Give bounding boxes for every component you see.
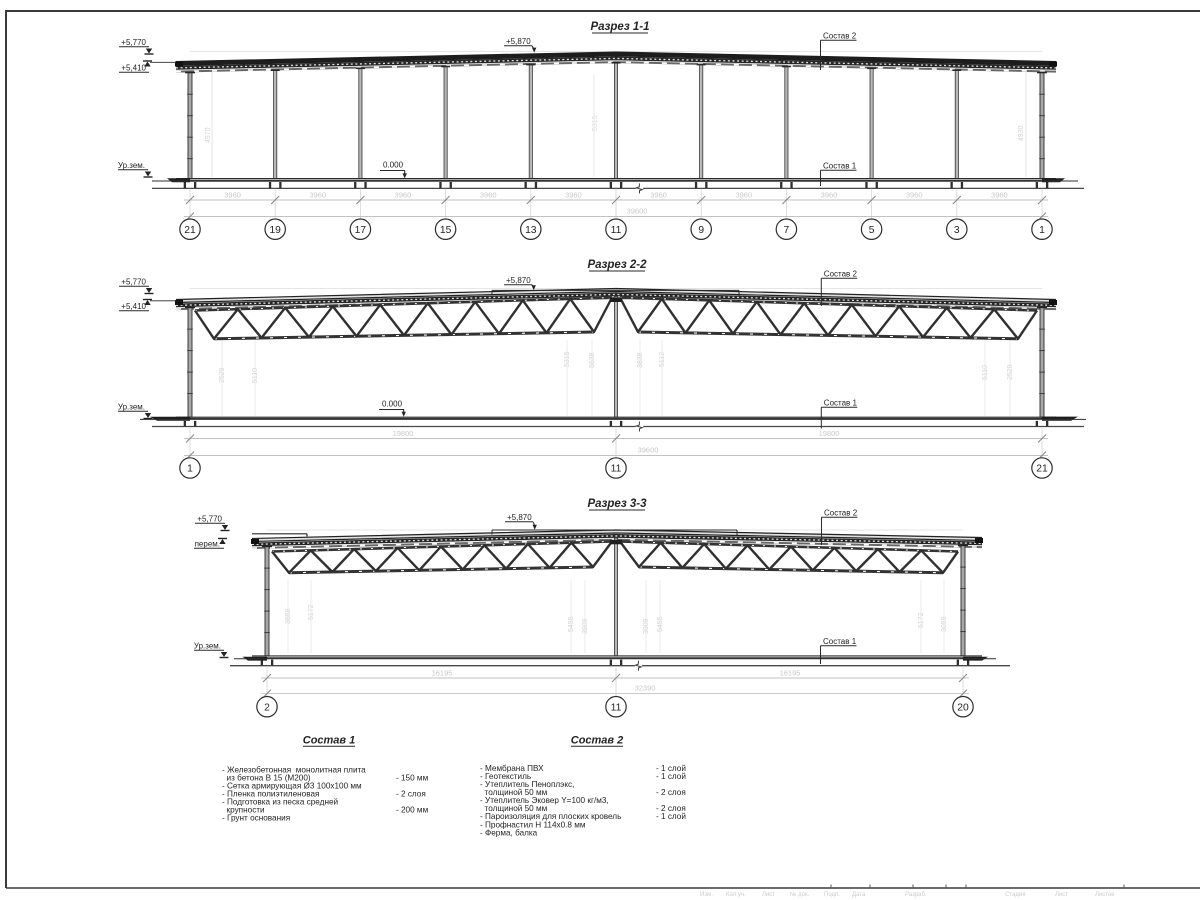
svg-text:Изм.: Изм. [700, 892, 713, 898]
svg-text:Разрез 1-1: Разрез 1-1 [590, 21, 649, 33]
svg-text:Стадия: Стадия [1005, 892, 1025, 898]
svg-text:Подп.: Подп. [824, 892, 840, 898]
svg-text:21: 21 [1036, 464, 1048, 475]
svg-text:- 2 слоя: - 2 слоя [396, 790, 426, 799]
svg-text:13: 13 [525, 225, 537, 236]
svg-text:2529: 2529 [219, 367, 226, 383]
svg-text:- Грунт основания: - Грунт основания [222, 814, 290, 823]
svg-text:5315: 5315 [592, 115, 599, 131]
svg-text:17: 17 [355, 225, 367, 236]
svg-text:Состав 1: Состав 1 [303, 735, 356, 747]
svg-text:11: 11 [611, 464, 622, 475]
svg-text:3960: 3960 [650, 190, 667, 199]
svg-text:+5,770: +5,770 [121, 278, 146, 287]
svg-text:Состав 1: Состав 1 [823, 162, 857, 171]
svg-text:Разраб.: Разраб. [905, 892, 927, 898]
svg-text:3: 3 [954, 225, 960, 236]
svg-text:3960: 3960 [224, 190, 241, 199]
svg-text:- 200 мм: - 200 мм [396, 806, 429, 815]
svg-text:5172: 5172 [308, 604, 315, 620]
svg-text:Ур.зем.: Ур.зем. [194, 642, 221, 651]
svg-text:39600: 39600 [638, 446, 659, 455]
svg-text:+5,870: +5,870 [507, 513, 532, 522]
svg-text:- Ферма, балка: - Ферма, балка [480, 828, 538, 837]
svg-text:9: 9 [698, 225, 704, 236]
svg-text:Ур.зем.: Ур.зем. [118, 161, 145, 170]
svg-text:5: 5 [869, 225, 875, 236]
svg-text:3960: 3960 [480, 190, 497, 199]
svg-text:7: 7 [784, 225, 790, 236]
svg-text:19800: 19800 [819, 429, 840, 438]
svg-text:5455: 5455 [568, 616, 575, 632]
svg-text:- 150 мм: - 150 мм [396, 773, 429, 782]
svg-text:№ док.: № док. [790, 891, 810, 898]
svg-text:5172: 5172 [918, 612, 925, 628]
svg-text:2529: 2529 [1007, 364, 1014, 380]
svg-text:20: 20 [957, 702, 969, 713]
svg-text:3909: 3909 [643, 618, 650, 634]
svg-text:- 1 слой: - 1 слой [656, 772, 686, 781]
svg-text:3960: 3960 [991, 190, 1008, 199]
svg-text:1: 1 [187, 464, 193, 475]
svg-text:+5,870: +5,870 [506, 276, 531, 285]
svg-text:4970: 4970 [205, 127, 212, 143]
svg-text:Состав 2: Состав 2 [823, 32, 857, 41]
svg-text:перем.: перем. [195, 540, 220, 549]
svg-text:5110: 5110 [252, 368, 259, 383]
svg-text:Дата: Дата [852, 892, 866, 898]
svg-text:Лист: Лист [762, 892, 775, 898]
svg-text:+5,870: +5,870 [506, 37, 531, 46]
svg-text:0.000: 0.000 [383, 161, 404, 170]
svg-text:- 2 слоя: - 2 слоя [656, 788, 686, 797]
svg-text:Состав 2: Состав 2 [824, 270, 858, 279]
svg-text:Лист: Лист [1055, 892, 1068, 898]
svg-text:Состав 1: Состав 1 [824, 399, 858, 408]
svg-text:5455: 5455 [657, 616, 664, 632]
svg-text:+5,770: +5,770 [197, 515, 222, 524]
svg-text:1: 1 [1039, 225, 1045, 236]
svg-text:5315: 5315 [564, 351, 571, 367]
svg-text:3960: 3960 [309, 190, 326, 199]
svg-text:11: 11 [611, 225, 622, 236]
svg-text:3960: 3960 [906, 190, 923, 199]
svg-text:0.000: 0.000 [382, 400, 403, 409]
svg-text:3658: 3658 [285, 608, 292, 624]
svg-text:19800: 19800 [393, 429, 414, 438]
svg-text:3059: 3059 [941, 616, 948, 632]
svg-text:+5,410: +5,410 [121, 64, 146, 73]
svg-text:16195: 16195 [432, 668, 453, 677]
svg-text:3960: 3960 [821, 190, 838, 199]
svg-text:16195: 16195 [780, 668, 801, 677]
svg-text:Разрез 2-2: Разрез 2-2 [587, 259, 647, 271]
svg-text:21: 21 [184, 225, 196, 236]
svg-text:32390: 32390 [635, 684, 656, 693]
svg-text:5110: 5110 [982, 365, 989, 380]
svg-text:5638: 5638 [589, 352, 596, 368]
svg-text:19: 19 [269, 225, 281, 236]
svg-text:3909: 3909 [582, 618, 589, 634]
svg-text:11: 11 [611, 702, 622, 713]
svg-text:Листов: Листов [1095, 892, 1115, 898]
svg-text:Состав 2: Состав 2 [571, 735, 624, 747]
svg-text:Кол.уч.: Кол.уч. [726, 892, 746, 898]
svg-text:Ур.зем.: Ур.зем. [118, 403, 145, 412]
svg-text:Состав 1: Состав 1 [823, 637, 857, 646]
svg-text:5112: 5112 [659, 352, 666, 367]
svg-text:Состав 2: Состав 2 [824, 509, 858, 518]
svg-text:+5,770: +5,770 [121, 38, 146, 47]
svg-text:Разрез 3-3: Разрез 3-3 [587, 498, 647, 510]
svg-text:3960: 3960 [565, 190, 582, 199]
svg-text:+5,410: +5,410 [121, 302, 146, 311]
svg-text:15: 15 [440, 225, 452, 236]
svg-text:39600: 39600 [627, 207, 648, 216]
svg-text:3960: 3960 [735, 190, 752, 199]
svg-text:4930: 4930 [1018, 125, 1025, 141]
svg-text:3838: 3838 [637, 352, 644, 368]
svg-text:- 1 слой: - 1 слой [656, 812, 686, 821]
svg-text:3960: 3960 [395, 190, 412, 199]
svg-text:2: 2 [264, 702, 270, 713]
